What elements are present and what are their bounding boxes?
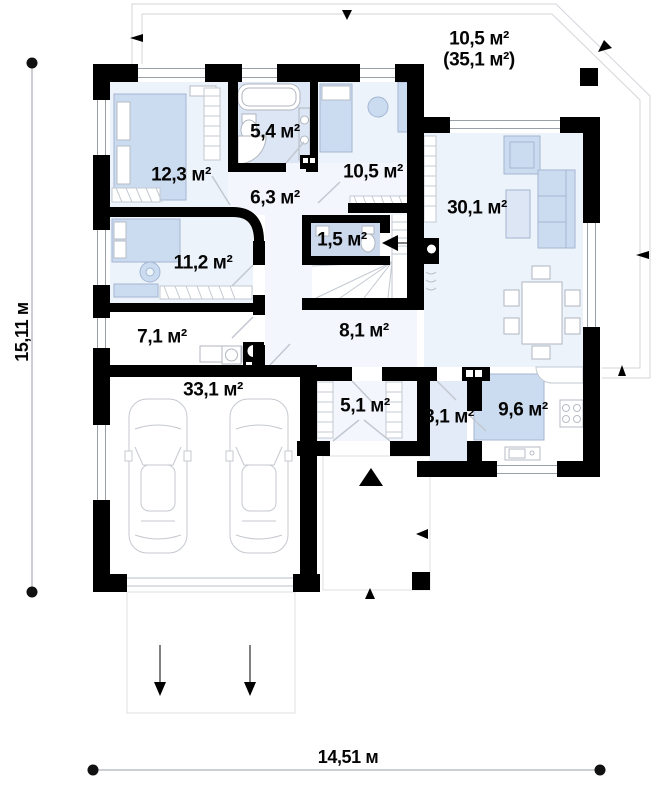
- bed-single-icon: [112, 219, 180, 262]
- office-bed-icon: [320, 84, 352, 152]
- dimension-label-bottom: 14,51 м: [318, 747, 379, 767]
- car-icon: [125, 399, 191, 553]
- room-label-entry: 5,1 м²: [340, 395, 390, 416]
- car-icon: [226, 399, 292, 553]
- roof-arrow-top: [342, 10, 352, 20]
- driveway-outline: [127, 592, 295, 713]
- room-label-terrace: 10,5 м² (35,1 м²): [443, 29, 515, 72]
- room-label-utility: 7,1 м²: [137, 326, 187, 347]
- room-label-pantry: 3,1 м²: [424, 406, 474, 427]
- terrace-area: 10,5 м²: [443, 29, 515, 50]
- room-label-office: 10,5 м²: [343, 161, 403, 182]
- floor-plan-drawing: [0, 0, 655, 785]
- kitchen-sink-icon: [505, 447, 540, 460]
- entrance-arrow: [359, 468, 383, 486]
- terrace-column: [580, 68, 598, 86]
- terrace-area-total: (35,1 м²): [443, 50, 515, 71]
- room-label-bedroom-2: 11,2 м²: [174, 252, 233, 273]
- kitchen-counter-icon: [536, 367, 583, 383]
- room-label-bedroom-1: 12,3 м²: [151, 164, 211, 185]
- sofa-icon: [538, 170, 575, 248]
- armchair-icon: [504, 136, 540, 174]
- room-label-living-room: 30,1 м²: [447, 197, 507, 218]
- cooktop-icon: [560, 400, 583, 427]
- laundry-icon: [200, 346, 242, 364]
- roof-arrow-corner: [598, 40, 612, 52]
- washbasin-icon: [299, 108, 310, 160]
- bathtub-icon: [238, 84, 300, 110]
- wardrobe-bedroom1-side: [204, 88, 220, 160]
- fireplace-icon: [424, 238, 439, 264]
- dresser-icon: [114, 284, 158, 297]
- porch-column: [412, 572, 430, 590]
- wall-panel-living: [424, 136, 436, 222]
- wardrobe-bedroom2: [160, 286, 252, 299]
- office-chair-icon: [368, 97, 388, 117]
- coffee-table-icon: [506, 190, 530, 238]
- room-label-kitchen: 9,6 м²: [498, 399, 548, 420]
- dimension-label-side: 15,11 м: [12, 302, 32, 362]
- porch-side-arrow: [416, 529, 428, 539]
- porch-outline: [323, 456, 430, 590]
- room-label-hall: 6,3 м²: [250, 187, 300, 208]
- room-label-garage: 33,1 м²: [183, 379, 243, 400]
- roof-arrow-bottom: [618, 365, 626, 376]
- car-icons: [125, 399, 292, 553]
- garage-door: [127, 578, 293, 586]
- roof-arrow-right: [636, 251, 649, 259]
- floor-plan: 10,5 м² (35,1 м²) 12,3 м² 5,4 м² 10,5 м²…: [0, 0, 655, 785]
- wardrobe-entry-left: [317, 374, 333, 438]
- room-label-wc: 1,5 м²: [317, 229, 367, 250]
- wardrobe-bedroom1: [112, 188, 162, 202]
- room-label-bathroom: 5,4 м²: [250, 121, 300, 142]
- driveway-arrows: [154, 645, 256, 696]
- room-label-corridor: 8,1 м²: [339, 320, 389, 341]
